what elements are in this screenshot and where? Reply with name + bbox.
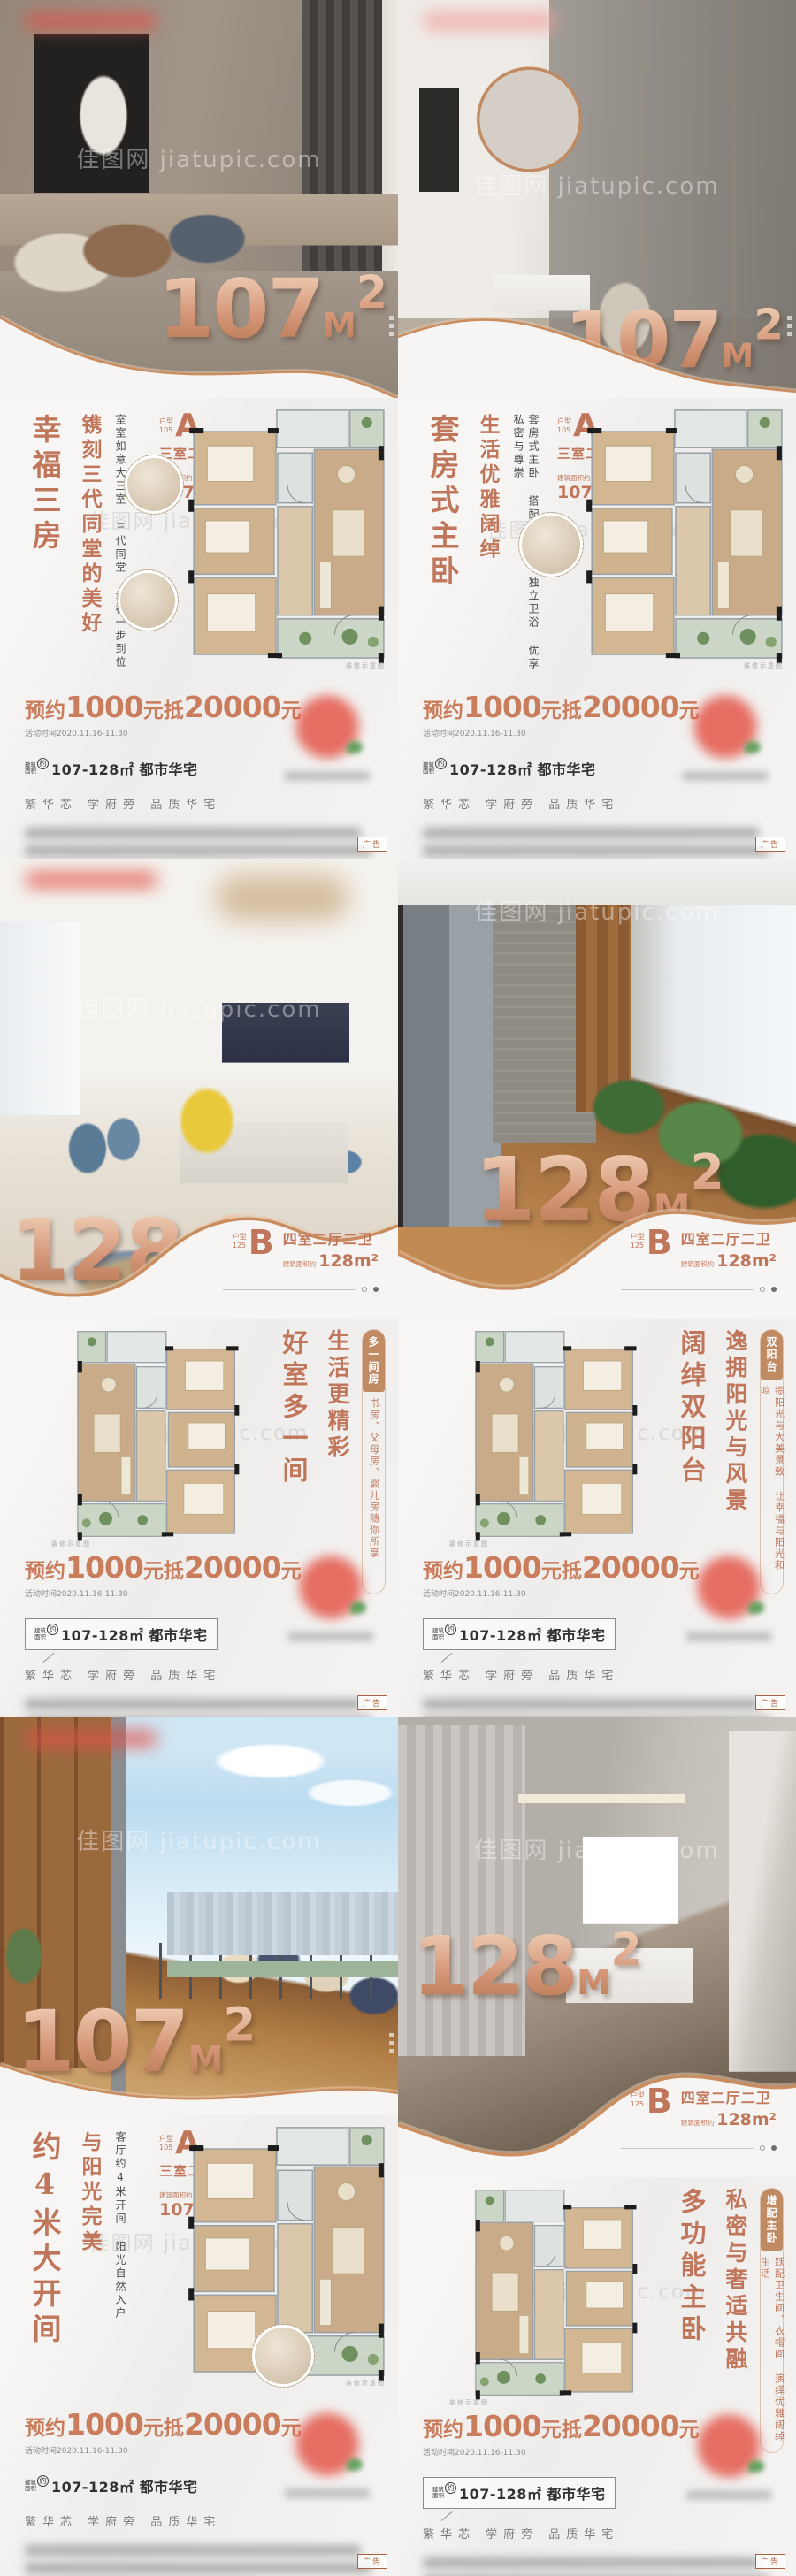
project-stamp-blurred <box>299 1556 363 1619</box>
developer-logo-blurred <box>25 1730 157 1747</box>
panel-content: 佳图网 jiatupic.com 套房式主卧 生活优雅阔绰 套房式主卧 搭配衣帽… <box>398 398 796 859</box>
unit-rooms: 四室二厅二卫 <box>681 1227 777 1249</box>
area-number: 128M2 <box>412 1930 640 2004</box>
floor-plan: 装修示意图 <box>426 2184 692 2405</box>
pagination-dots <box>621 2145 777 2151</box>
watermark-text: 佳图网 jiatupic.com <box>398 1832 796 1865</box>
poster-panel-2: 佳图网 jiatupic.com 107M2 佳图网 jiatupic.com … <box>398 0 796 859</box>
ad-badge: 广告 <box>755 1695 785 1710</box>
developer-logo-blurred <box>423 12 555 30</box>
area-range-row: 建筑面积 约 107-128㎡ 都市华宅 <box>423 758 596 779</box>
plan-caption: 装修示意图 <box>346 2379 386 2388</box>
headline-detail: 室室如意大三室 三代同堂 幸福一步到位 <box>113 414 128 679</box>
poster-panel-5: 佳图网 jiatupic.com 107M2 佳图网 jiatupic.com … <box>0 1717 398 2576</box>
slogan: 繁华芯 学府旁 品质华宅 <box>423 795 773 812</box>
area-number: 128M2 <box>11 1212 249 1288</box>
floor-plan: 装修示意图 <box>172 2119 394 2389</box>
watermark-text: 佳图网 jiatupic.com <box>0 141 398 174</box>
area-range-row: 建筑面积 约 107-128㎡ 都市华宅 <box>25 1618 218 1650</box>
project-stamp-blurred <box>295 2412 359 2476</box>
project-stamp-blurred <box>697 1556 761 1619</box>
city-view-balcony-photo: 佳图网 jiatupic.com 107M2 <box>0 1717 398 2115</box>
poster-panel-4: 佳图网 jiatupic.com 128M2 户型125 B 四室二厅二卫 建筑… <box>398 859 796 1717</box>
ad-badge: 广告 <box>357 1695 387 1710</box>
photo-tag-icon <box>787 2095 792 2115</box>
headline-primary: 幸福三房 <box>23 414 65 688</box>
photo-tag-icon <box>389 316 394 336</box>
plan-caption: 装修示意图 <box>449 2398 489 2407</box>
approx-icon: 约 <box>37 758 49 769</box>
logo-blurred <box>216 875 348 921</box>
feature-tag-body: 揽阳光与大美景致 让幸福与阳光和鸣 <box>758 1386 786 1571</box>
floor-plan: 装修示意图 <box>570 401 792 672</box>
ad-badge: 广告 <box>357 2554 387 2569</box>
ad-badge: 广告 <box>755 2554 785 2569</box>
developer-logo-blurred <box>25 871 157 889</box>
unit-area-value: 128m² <box>318 1251 379 1271</box>
disclaimer-blurred <box>423 2557 773 2576</box>
headline-secondary: 镌刻三代同堂的美好 <box>74 414 104 688</box>
photo-tag-icon <box>787 316 792 336</box>
photo-tag-icon <box>389 1236 394 1257</box>
slogan: 繁华芯 学府旁 品质华宅 <box>423 1666 773 1683</box>
disclaimer-blurred <box>423 828 773 859</box>
headline-detail: 客厅约4米开间 阳光自然入户 <box>113 2131 128 2396</box>
headline-secondary: 生活优雅阔绰 <box>472 414 502 688</box>
feature-tag-title: 多一间房 <box>363 1330 385 1392</box>
panel-content: 佳图网 jiatupic.com 约4米大开间 与阳光完美 客厅约4米开间 阳光… <box>0 2115 398 2576</box>
bedroom-photo: 佳图网 jiatupic.com 107M2 <box>0 0 398 398</box>
headline-secondary: 与阳光完美 <box>74 2131 104 2405</box>
unit-rooms: 四室二厅二卫 <box>681 2086 777 2107</box>
disclaimer-blurred <box>25 2545 375 2576</box>
slogan: 繁华芯 学府旁 品质华宅 <box>25 795 375 812</box>
watermark-text: 佳图网 jiatupic.com <box>0 991 398 1024</box>
balcony-photo: 佳图网 jiatupic.com 128M2 户型125 B 四室二厅二卫 建筑… <box>398 859 796 1319</box>
panel-content: 佳图网 jiatupic.com 装修示意图 阔绰双阳台 逸拥阳光与风景 双阳台… <box>398 1319 796 1717</box>
project-stamp-blurred <box>697 2414 761 2478</box>
watermark-text: 佳图网 jiatupic.com <box>0 1823 398 1856</box>
unit-area-value: 128m² <box>716 2110 777 2129</box>
room-inset-photo <box>251 2324 315 2388</box>
disclaimer-blurred <box>25 1699 375 1717</box>
area-range-row: 建筑面积 约 107-128㎡ 都市华宅 <box>423 1618 616 1650</box>
unit-letter: B <box>647 2086 672 2116</box>
area-range-row: 建筑面积 约 107-128㎡ 都市华宅 <box>25 2475 198 2496</box>
project-stamp-blurred <box>693 695 757 759</box>
ad-badge: 广告 <box>357 837 387 852</box>
plan-caption: 装修示意图 <box>51 1540 91 1548</box>
unit-letter: B <box>249 1227 274 1257</box>
room-inset-photo <box>117 569 179 631</box>
feature-tag-title: 双阳台 <box>761 1330 783 1380</box>
headline-block: 约4米大开间 与阳光完美 客厅约4米开间 阳光自然入户 <box>23 2131 128 2405</box>
unit-info: 户型125 B 四室二厅二卫 建筑面积约128m² <box>233 1227 379 1271</box>
slogan: 繁华芯 学府旁 品质华宅 <box>25 2512 375 2529</box>
plan-caption: 装修示意图 <box>744 661 784 670</box>
unit-info: 户型125 B 四室二厅二卫 建筑面积约128m² <box>631 1227 777 1271</box>
developer-logo-blurred <box>25 12 157 30</box>
watermark-text: 佳图网 jiatupic.com <box>398 894 796 927</box>
photo-tag-icon <box>389 2033 394 2053</box>
unit-info: 户型125 B 四室二厅二卫 建筑面积约128m² <box>631 2086 777 2129</box>
slogan: 繁华芯 学府旁 品质华宅 <box>423 2525 773 2542</box>
room-inset-photo <box>124 455 184 515</box>
poster-grid: 佳图网 jiatupic.com 107M2 佳图网 jiatupic.com … <box>0 0 796 2576</box>
area-number: 107M2 <box>564 305 782 375</box>
panel-content: 佳图网 jiatupic.com 幸福三房 镌刻三代同堂的美好 室室如意大三室 … <box>0 398 398 859</box>
area-range-row: 建筑面积 约 107-128㎡ 都市华宅 <box>423 2477 616 2509</box>
panel-content: 佳图网 jiatupic.com 装修示意图 好室多一间 生活更精彩 多一间房 … <box>0 1319 398 1717</box>
project-stamp-blurred <box>295 695 359 759</box>
unit-area-value: 128m² <box>716 1251 777 1271</box>
plan-caption: 装修示意图 <box>449 1540 489 1548</box>
ad-badge: 广告 <box>755 837 785 852</box>
headline-block: 幸福三房 镌刻三代同堂的美好 室室如意大三室 三代同堂 幸福一步到位 <box>23 414 128 688</box>
dressing-room-photo: 佳图网 jiatupic.com 107M2 <box>398 0 796 398</box>
floor-plan: 装修示意图 <box>172 401 394 672</box>
poster-panel-6: 佳图网 jiatupic.com 128M2 户型125 B 四室二厅二卫 建筑… <box>398 1717 796 2576</box>
pagination-dots <box>621 1287 777 1292</box>
headline-primary: 约4米大开间 <box>23 2131 65 2405</box>
poster-panel-1: 佳图网 jiatupic.com 107M2 佳图网 jiatupic.com … <box>0 0 398 859</box>
living-room-photo: 佳图网 jiatupic.com 128M2 户型125 B 四室二厅二卫 建筑… <box>0 859 398 1319</box>
area-range-text: 107-128㎡ 都市华宅 <box>51 758 198 779</box>
area-number: 107M2 <box>16 2004 254 2080</box>
unit-rooms: 四室二厅二卫 <box>283 1227 379 1249</box>
area-number: 107M2 <box>157 272 386 347</box>
pagination-dots <box>223 1287 379 1292</box>
plan-caption: 装修示意图 <box>346 661 386 670</box>
panel-content: 佳图网 jiatupic.com 装修示意图 多功能主卧 私密与奢适共融 增配主… <box>398 2177 796 2576</box>
poster-panel-3: 佳图网 jiatupic.com 128M2 户型125 B 四室二厅二卫 建筑… <box>0 859 398 1717</box>
disclaimer-blurred <box>423 1699 773 1717</box>
feature-tag-body: 书房、父母房、婴儿房随你所享 <box>367 1398 381 1559</box>
headline-primary: 套房式主卧 <box>421 414 463 688</box>
leaf-icon <box>347 741 363 753</box>
room-inset-photo <box>518 512 584 577</box>
master-bedroom-photo: 佳图网 jiatupic.com 128M2 户型125 B 四室二厅二卫 建筑… <box>398 1717 796 2177</box>
floor-plan: 装修示意图 <box>28 1326 294 1547</box>
feature-tag-title: 增配主卧 <box>761 2189 783 2251</box>
floor-plan: 装修示意图 <box>426 1326 692 1547</box>
area-range-row: 建筑面积 约 107-128㎡ 都市华宅 <box>25 758 198 779</box>
watermark-text: 佳图网 jiatupic.com <box>398 168 796 201</box>
photo-tag-icon <box>787 1236 792 1257</box>
unit-letter: B <box>647 1227 672 1257</box>
disclaimer-blurred <box>25 828 375 859</box>
slogan: 繁华芯 学府旁 品质华宅 <box>25 1666 375 1683</box>
stamp-caption-blurred <box>285 771 370 781</box>
area-number: 128M2 <box>474 1150 723 1230</box>
